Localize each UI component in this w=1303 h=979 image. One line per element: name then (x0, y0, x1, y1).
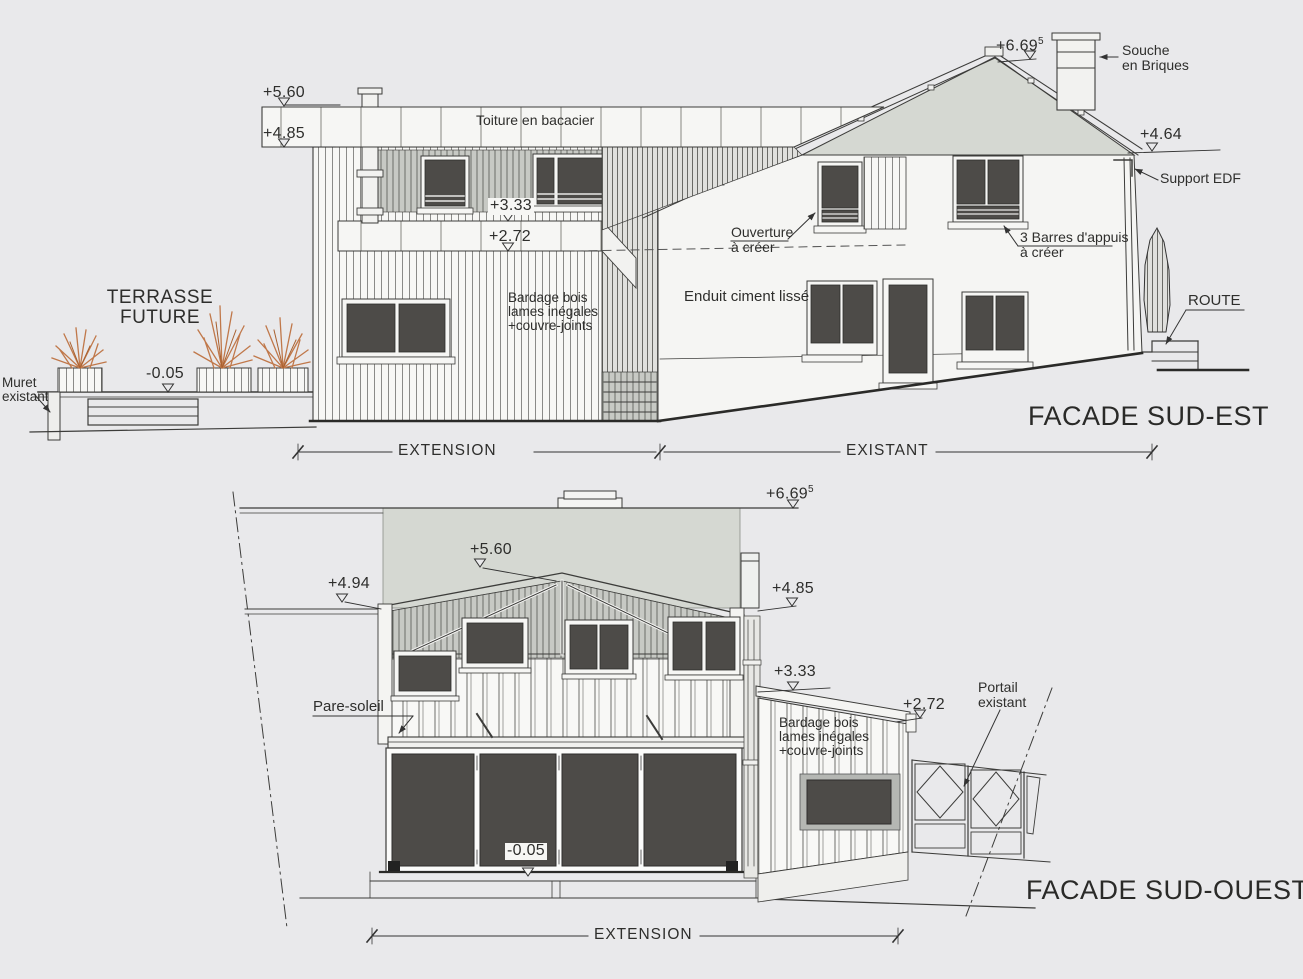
level-m005-so: -0.05 (505, 843, 547, 860)
level-669-so: +6.695 (766, 485, 814, 503)
portail-existant-label: Portail existant (978, 680, 1026, 709)
level-560-se: +5.60 (263, 85, 305, 102)
pare-soleil-shelf (388, 737, 762, 748)
level-333-so: +3.33 (774, 664, 816, 681)
title-facade-sud-est: FACADE SUD-EST (1028, 402, 1269, 430)
title-facade-sud-ouest: FACADE SUD-OUEST (1026, 876, 1303, 904)
level-669-se: +6.695 (996, 37, 1044, 55)
route-label: ROUTE (1188, 293, 1241, 309)
portail-fence (912, 760, 1050, 862)
level-485-so: +4.85 (772, 581, 814, 598)
level-560-so: +5.60 (470, 542, 512, 559)
property-line-left (233, 492, 287, 928)
terrasse-future-label: TERRASSE FUTURE (95, 288, 225, 328)
support-edf-label: Support EDF (1160, 171, 1241, 186)
souche-briques-label: Souche en Briques (1122, 43, 1189, 72)
dim-existant-se: EXISTANT (846, 443, 929, 459)
enduit-ciment-label: Enduit ciment lissé (684, 289, 809, 305)
facade-sud-ouest-drawing (233, 491, 1052, 944)
extension-sud-ouest (300, 573, 1035, 908)
level-marker-m005 (163, 384, 174, 392)
blueprint-page: +5.60 +4.85 Toiture en bacacier +3.33 +2… (0, 0, 1303, 979)
existing-bardage-sud-ouest (743, 616, 1052, 916)
facade-drawings-svg (0, 0, 1303, 979)
level-m005-se: -0.05 (146, 366, 184, 383)
level-333-se: +3.33 (488, 198, 534, 215)
level-485-se: +4.85 (263, 126, 305, 143)
entrance-door (879, 279, 937, 389)
level-272-so: +2.72 (903, 697, 945, 714)
existing-house-sud-est (575, 33, 1248, 421)
window-barres-appuis (948, 156, 1028, 229)
level-464-se: +4.64 (1140, 127, 1182, 144)
window-ouverture (814, 157, 906, 233)
bardage-bois-label-se: Bardage bois lames inégales +couvre-join… (508, 291, 598, 334)
muret-existant-label: Muret existant (2, 376, 49, 404)
cypress-bush (1144, 228, 1170, 332)
level-494-so: +4.94 (328, 576, 370, 593)
dim-extension-se: EXTENSION (398, 443, 497, 459)
pare-soleil-label: Pare-soleil (313, 699, 384, 715)
road-steps (1142, 341, 1248, 370)
barres-appuis-label: 3 Barres d'appuis à créer (1020, 230, 1129, 259)
ouverture-label: Ouverture à créer (731, 225, 793, 254)
toiture-label: Toiture en bacacier (476, 113, 594, 128)
level-272-se: +2.72 (489, 229, 531, 246)
chimney-souche (1052, 33, 1100, 110)
bardage-bois-label-so: Bardage bois lames inégales +couvre-join… (779, 716, 869, 759)
dim-extension-so: EXTENSION (594, 927, 693, 943)
